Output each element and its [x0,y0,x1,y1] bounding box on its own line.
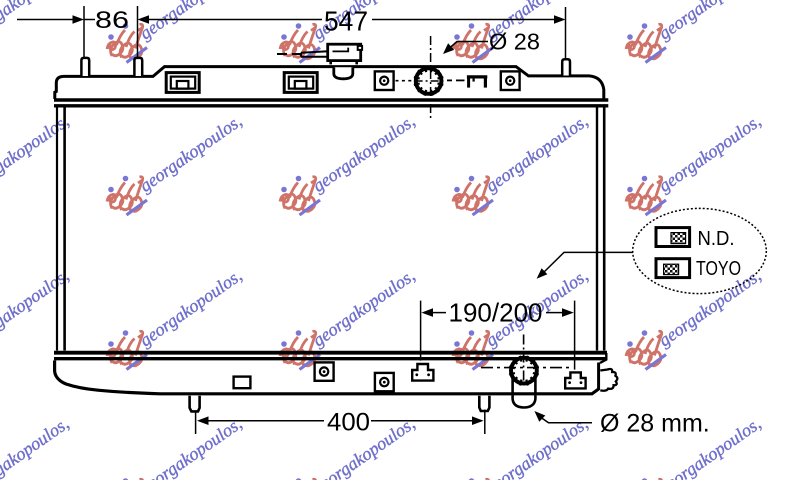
svg-text:190/200: 190/200 [449,298,543,328]
svg-text:N.D.: N.D. [698,227,735,250]
svg-text:547: 547 [324,6,368,37]
svg-text:Ø 28 mm.: Ø 28 mm. [600,410,710,438]
svg-text:Ø 28: Ø 28 [489,29,540,55]
svg-text:400: 400 [327,409,370,437]
svg-text:86: 86 [95,7,129,34]
svg-text:TOYO: TOYO [696,257,741,280]
